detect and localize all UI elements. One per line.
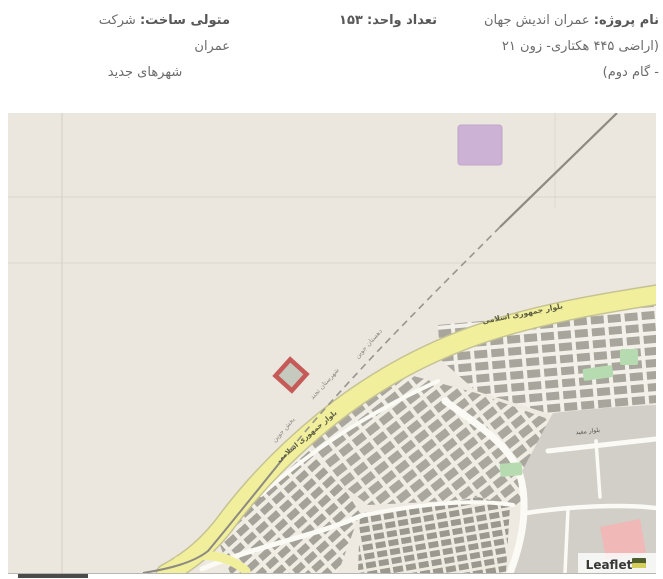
project-info: نام پروژه: عمران اندیش جهان (اراضی ۴۴۵ ه… — [429, 8, 659, 86]
attribution-control: Leaflet — [578, 553, 656, 573]
units-info: تعداد واحد: ۱۵۳ — [307, 8, 437, 34]
units-label: تعداد واحد: — [367, 13, 437, 28]
project-line1: نام پروژه: عمران اندیش جهان — [429, 8, 659, 34]
project-label: نام پروژه: — [594, 13, 659, 28]
builder-label: متولی ساخت: — [140, 13, 230, 28]
scale-bar-fragment — [18, 574, 88, 578]
builder-line1: متولی ساخت: شرکت عمران — [60, 8, 230, 60]
project-name: عمران اندیش جهان — [484, 13, 590, 28]
info-header: نام پروژه: عمران اندیش جهان (اراضی ۴۴۵ ه… — [0, 0, 663, 100]
builder-line2: شهرهای جدید — [60, 60, 230, 86]
purple-zone-overlay[interactable] — [458, 125, 502, 165]
map-canvas[interactable]: بلوار جمهوری اسلامی بلوار جمهوری اسلامی … — [8, 113, 656, 573]
project-line3: - گام دوم) — [429, 60, 659, 86]
project-line2: (اراضی ۴۴۵ هکتاری- زون ۲۱ — [429, 34, 659, 60]
leaflet-map[interactable]: بلوار جمهوری اسلامی بلوار جمهوری اسلامی … — [8, 113, 656, 574]
leaflet-flag-icon — [632, 558, 646, 568]
builder-info: متولی ساخت: شرکت عمران شهرهای جدید — [60, 8, 230, 86]
attribution-link[interactable]: Leaflet — [586, 558, 633, 572]
units-value: ۱۵۳ — [339, 13, 363, 28]
